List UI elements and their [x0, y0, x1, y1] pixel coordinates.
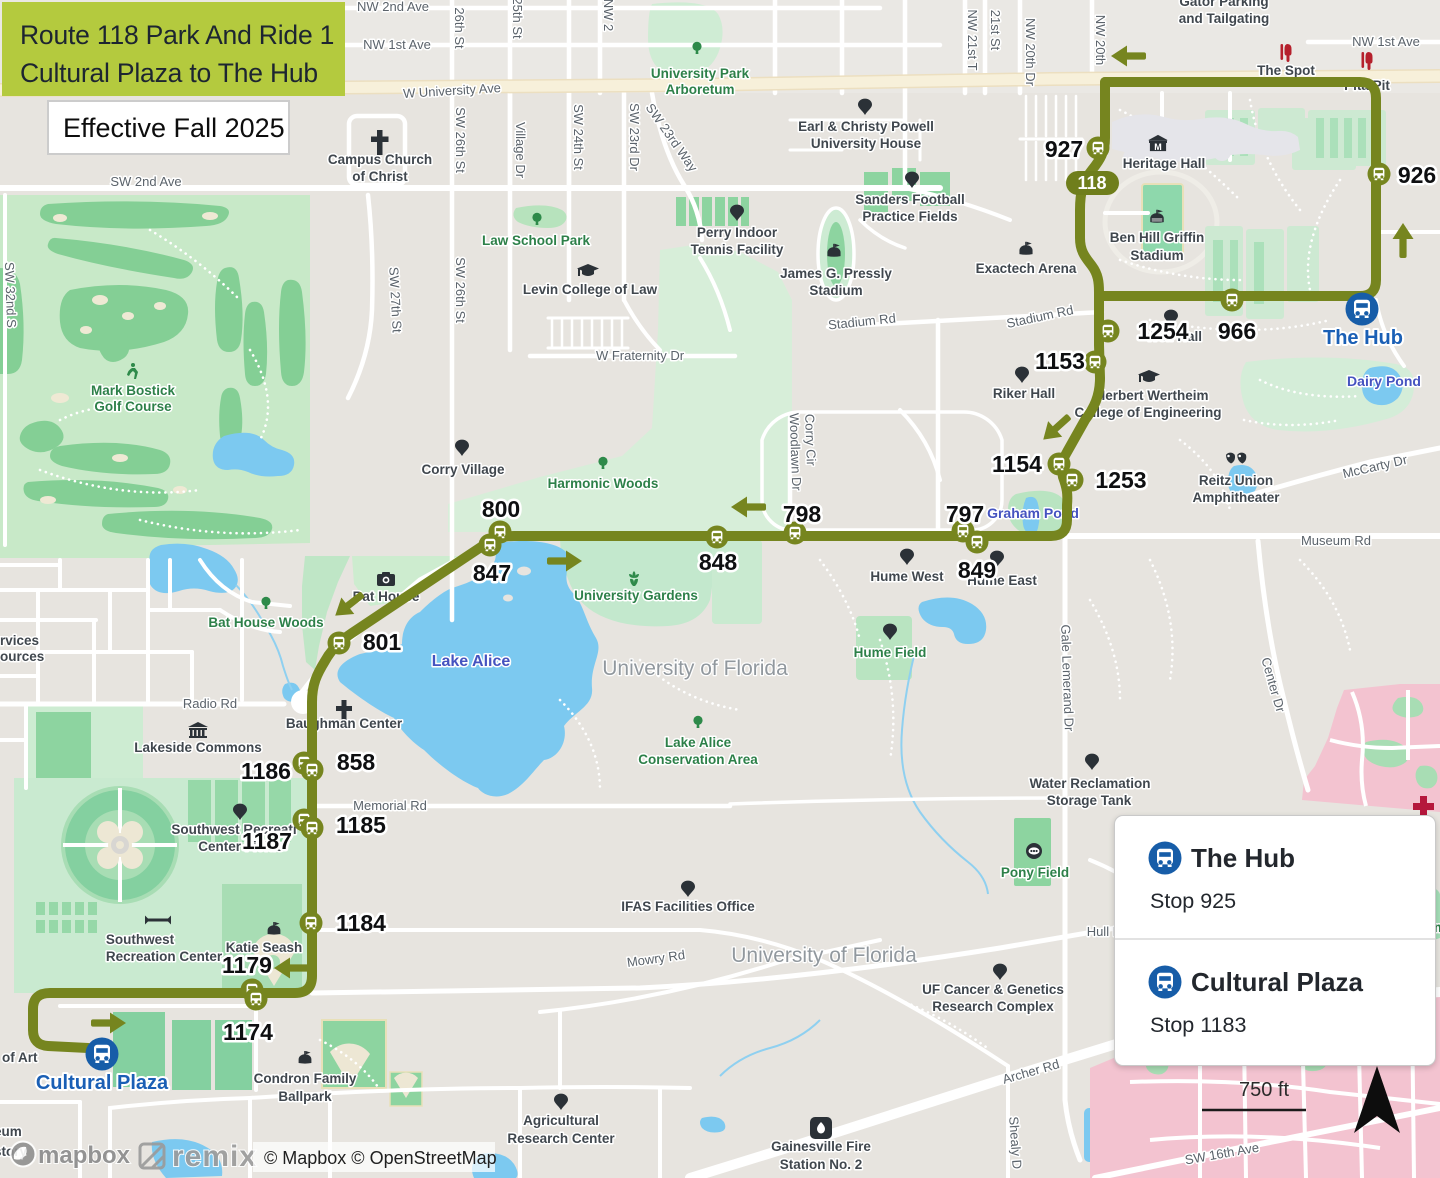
svg-text:SW 26th St: SW 26th St: [453, 107, 468, 173]
svg-text:Lake Alice: Lake Alice: [432, 653, 511, 670]
svg-text:Harmonic Woods: Harmonic Woods: [548, 476, 659, 491]
svg-text:ources: ources: [0, 649, 44, 664]
svg-text:Gator Parking: Gator Parking: [1179, 0, 1268, 9]
svg-text:927: 927: [1045, 136, 1083, 162]
svg-text:Storage Tank: Storage Tank: [1047, 793, 1132, 808]
svg-text:Village Dr: Village Dr: [513, 122, 528, 179]
svg-text:849: 849: [958, 557, 996, 583]
svg-text:Lake Alice: Lake Alice: [665, 735, 732, 750]
svg-text:118: 118: [1077, 173, 1106, 193]
svg-text:Mark Bostick: Mark Bostick: [91, 383, 176, 398]
svg-text:Stadium: Stadium: [809, 283, 862, 298]
svg-text:Perry Indoor: Perry Indoor: [697, 225, 778, 240]
svg-text:Radio Rd: Radio Rd: [183, 696, 237, 711]
svg-text:Arboretum: Arboretum: [665, 82, 734, 97]
svg-text:SW 32nd S: SW 32nd S: [2, 262, 19, 329]
svg-text:1153: 1153: [1035, 348, 1085, 374]
svg-text:NW 2nd Ave: NW 2nd Ave: [357, 0, 429, 14]
svg-text:26th St: 26th St: [452, 7, 467, 49]
svg-text:1254: 1254: [1137, 318, 1188, 344]
svg-text:NW 1st Ave: NW 1st Ave: [363, 37, 431, 52]
svg-text:and Tailgating: and Tailgating: [1179, 11, 1270, 26]
svg-text:W Fraternity Dr: W Fraternity Dr: [596, 348, 685, 363]
svg-text:1184: 1184: [336, 910, 386, 936]
svg-text:Earl & Christy Powell: Earl & Christy Powell: [798, 119, 934, 134]
svg-text:NW 20th: NW 20th: [1093, 15, 1108, 66]
svg-text:© Mapbox © OpenStreetMap: © Mapbox © OpenStreetMap: [264, 1148, 497, 1168]
svg-text:1185: 1185: [336, 812, 386, 838]
svg-text:University Gardens: University Gardens: [574, 588, 698, 603]
svg-text:Bat House Woods: Bat House Woods: [208, 615, 323, 630]
svg-text:University Park: University Park: [651, 66, 750, 81]
svg-text:Exactech Arena: Exactech Arena: [976, 261, 1077, 276]
svg-text:926: 926: [1398, 162, 1436, 188]
svg-text:Research Center: Research Center: [507, 1131, 615, 1146]
svg-text:798: 798: [783, 501, 822, 527]
svg-text:Levin College of Law: Levin College of Law: [523, 282, 658, 297]
svg-text:Agricultural: Agricultural: [523, 1113, 599, 1128]
svg-text:IFAS Facilities Office: IFAS Facilities Office: [621, 899, 755, 914]
svg-text:NW 2: NW 2: [601, 0, 616, 31]
svg-text:847: 847: [473, 560, 511, 586]
svg-text:Corry Cir: Corry Cir: [802, 414, 819, 467]
svg-text:University of Florida: University of Florida: [731, 944, 917, 967]
svg-text:NW 1st Ave: NW 1st Ave: [1352, 34, 1420, 49]
svg-text:Hume West: Hume West: [870, 569, 944, 584]
svg-text:James G. Pressly: James G. Pressly: [780, 266, 892, 281]
svg-text:25th St: 25th St: [510, 0, 525, 39]
svg-text:Ben Hill Griffin: Ben Hill Griffin: [1110, 230, 1205, 245]
svg-text:1253: 1253: [1095, 467, 1146, 493]
svg-text:Gainesville Fire: Gainesville Fire: [771, 1139, 871, 1154]
svg-text:21st St: 21st St: [988, 10, 1003, 51]
svg-text:SW 23rd Dr: SW 23rd Dr: [627, 103, 642, 172]
svg-text:Campus Church: Campus Church: [328, 152, 432, 167]
svg-text:858: 858: [337, 749, 376, 775]
svg-text:Southwest: Southwest: [106, 932, 175, 947]
svg-text:The Spot: The Spot: [1257, 63, 1315, 78]
svg-text:eum: eum: [0, 1124, 22, 1139]
svg-text:rvices: rvices: [0, 633, 39, 648]
svg-text:Ballpark: Ballpark: [278, 1089, 332, 1104]
svg-text:1174: 1174: [223, 1019, 273, 1045]
svg-text:SW 2nd Ave: SW 2nd Ave: [110, 174, 181, 189]
svg-text:Law School Park: Law School Park: [482, 233, 591, 248]
svg-text:966: 966: [1218, 318, 1256, 344]
svg-text:of Christ: of Christ: [352, 169, 408, 184]
svg-text:Golf Course: Golf Course: [94, 399, 172, 414]
svg-text:Practice Fields: Practice Fields: [862, 209, 957, 224]
svg-text:Heritage Hall: Heritage Hall: [1123, 156, 1206, 171]
svg-text:remix: remix: [172, 1140, 257, 1173]
svg-text:797: 797: [946, 501, 984, 527]
svg-text:University of Florida: University of Florida: [602, 657, 788, 680]
svg-text:Hume Field: Hume Field: [854, 645, 927, 660]
svg-text:Condron Family: Condron Family: [254, 1071, 357, 1086]
svg-text:800: 800: [482, 496, 520, 522]
svg-text:Riker Hall: Riker Hall: [993, 386, 1055, 401]
svg-text:The Hub: The Hub: [1323, 327, 1403, 349]
svg-text:mapbox: mapbox: [38, 1142, 131, 1169]
svg-text:848: 848: [699, 549, 738, 575]
svg-text:Lakeside Commons: Lakeside Commons: [134, 740, 262, 755]
svg-text:Pony Field: Pony Field: [1001, 865, 1069, 880]
svg-text:SW 26th St: SW 26th St: [453, 257, 468, 323]
svg-text:Corry Village: Corry Village: [421, 462, 505, 477]
svg-text:1179: 1179: [222, 952, 272, 978]
svg-text:Baughman Center: Baughman Center: [286, 716, 403, 731]
svg-text:of Art: of Art: [2, 1050, 38, 1065]
svg-text:SW 24th St: SW 24th St: [571, 104, 586, 170]
svg-text:NW 21st T: NW 21st T: [965, 9, 980, 70]
svg-text:1187: 1187: [242, 828, 292, 854]
svg-text:Woodlawn Dr: Woodlawn Dr: [787, 413, 805, 492]
svg-text:Amphitheater: Amphitheater: [1192, 490, 1280, 505]
svg-text:Conservation Area: Conservation Area: [638, 752, 758, 767]
svg-text:Research Complex: Research Complex: [932, 999, 1054, 1014]
svg-text:Dairy Pond: Dairy Pond: [1347, 373, 1421, 389]
svg-text:Water Reclamation: Water Reclamation: [1029, 776, 1150, 791]
svg-text:Herbert Wertheim: Herbert Wertheim: [1095, 388, 1208, 403]
svg-text:Stadium: Stadium: [1130, 248, 1183, 263]
svg-text:Station No. 2: Station No. 2: [780, 1157, 863, 1172]
svg-text:Sanders Football: Sanders Football: [855, 192, 965, 207]
svg-text:NW 20th Dr: NW 20th Dr: [1023, 18, 1038, 87]
svg-text:801: 801: [363, 629, 402, 655]
svg-text:1154: 1154: [992, 451, 1042, 477]
svg-text:Tennis Facility: Tennis Facility: [691, 242, 784, 257]
svg-text:UF Cancer & Genetics: UF Cancer & Genetics: [922, 982, 1064, 997]
svg-text:Reitz Union: Reitz Union: [1199, 473, 1273, 488]
svg-text:Museum Rd: Museum Rd: [1301, 533, 1371, 548]
svg-text:Cultural Plaza: Cultural Plaza: [36, 1072, 169, 1094]
svg-text:University House: University House: [811, 136, 922, 151]
svg-text:750 ft: 750 ft: [1239, 1079, 1289, 1101]
svg-text:M: M: [1154, 142, 1162, 152]
svg-text:Memorial Rd: Memorial Rd: [353, 798, 427, 813]
svg-text:1186: 1186: [241, 758, 291, 784]
svg-text:Recreation Center: Recreation Center: [106, 949, 223, 964]
